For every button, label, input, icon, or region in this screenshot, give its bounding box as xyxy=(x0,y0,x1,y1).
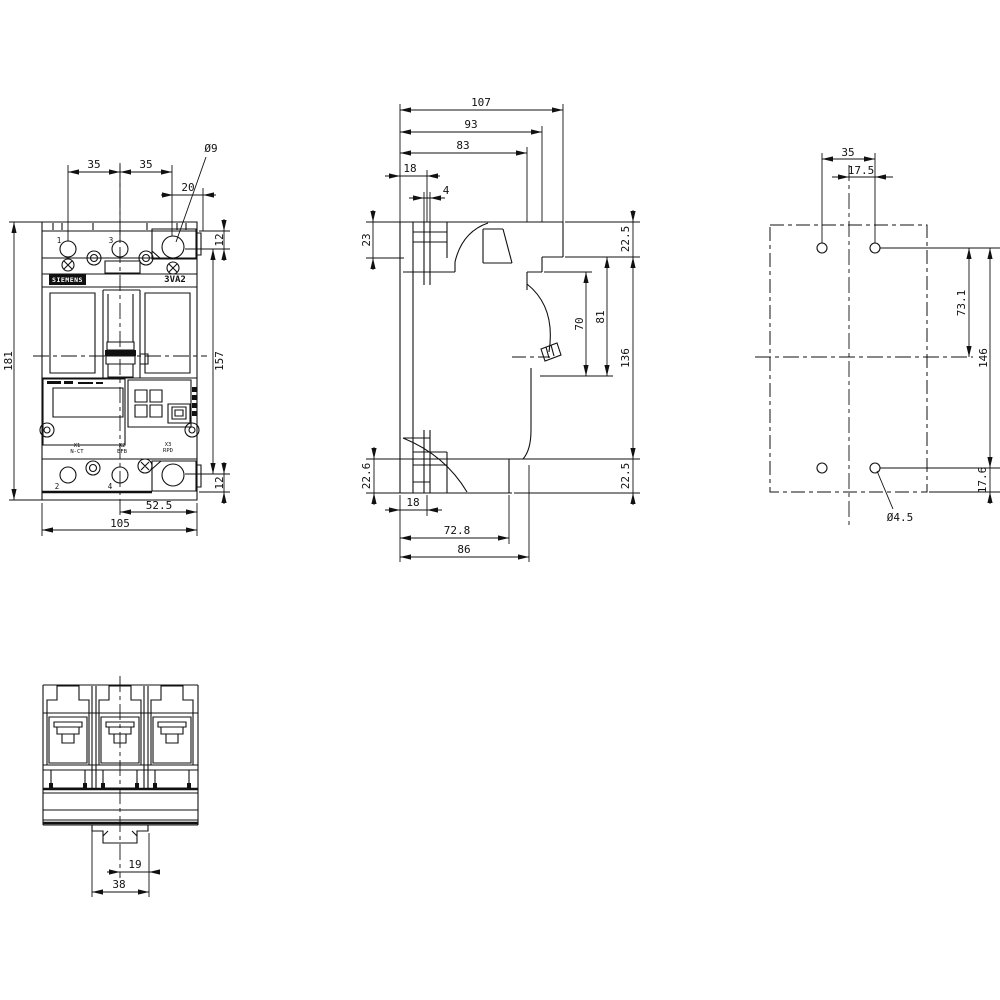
dim-70: 70 xyxy=(573,317,586,330)
mounting-hole-top-left xyxy=(817,243,827,253)
dim-107: 107 xyxy=(471,96,491,109)
dim-86: 86 xyxy=(457,543,470,556)
drill-arrowheads xyxy=(822,156,993,503)
dimension-drawing-page: 35 35 20 Ø9 12 157 12 181 52.5 105 SIEME… xyxy=(0,0,1000,1000)
drill-holes xyxy=(817,243,880,473)
dim-93: 93 xyxy=(464,118,477,131)
dim-105: 105 xyxy=(110,517,130,530)
dim-38: 38 xyxy=(112,878,125,891)
bottom-view-dimension-lines xyxy=(92,831,160,897)
dim-22-6: 22.6 xyxy=(360,463,373,490)
dim-23: 23 xyxy=(360,233,373,246)
mounting-hole-bottom-right xyxy=(870,463,880,473)
bottom-view-arrowheads xyxy=(92,869,160,894)
bottom-view-heavy-lines xyxy=(43,789,198,823)
hole-pole1 xyxy=(60,241,76,257)
siemens-logo: SIEMENS xyxy=(52,276,83,284)
dim-20: 20 xyxy=(181,181,194,194)
dia-9-label: Ø9 xyxy=(204,142,217,155)
side-view-body-lines xyxy=(400,222,563,493)
front-view: 35 35 20 Ø9 12 157 12 181 52.5 105 SIEME… xyxy=(2,142,230,536)
model-label: 3VA2 xyxy=(164,275,186,285)
dim-72-8: 72.8 xyxy=(444,524,471,537)
dim-52-5: 52.5 xyxy=(146,499,173,512)
side-arrowheads xyxy=(370,107,635,559)
pole-number-1: 1 xyxy=(57,236,62,245)
pole-number-4: 4 xyxy=(108,482,113,491)
dim-12-bottom: 12 xyxy=(213,476,226,489)
dim-18-bottom: 18 xyxy=(406,496,419,509)
mounting-hole-top-right xyxy=(870,243,880,253)
dim-157: 157 xyxy=(213,351,226,371)
dim-17-5: 17.5 xyxy=(848,164,875,177)
technical-drawing: 35 35 20 Ø9 12 157 12 181 52.5 105 SIEME… xyxy=(0,0,1000,1000)
dim-22-5-top: 22.5 xyxy=(619,226,632,253)
dim-136: 136 xyxy=(619,348,632,368)
dim-35-drill: 35 xyxy=(841,146,854,159)
drilling-plan: 35 17.5 73.1 146 17.6 Ø4.5 xyxy=(755,146,1000,525)
hole-pole2 xyxy=(60,467,76,483)
dim-146: 146 xyxy=(977,348,990,368)
drill-centerlines xyxy=(755,165,973,525)
dim-12-top: 12 xyxy=(213,233,226,246)
clamp-hole-top xyxy=(162,236,184,258)
bottom-view-body-lines xyxy=(43,685,198,843)
mounting-hole-bottom-left xyxy=(817,463,827,473)
side-view: 107 93 83 18 4 23 22.6 22.5 136 22.5 81 … xyxy=(360,96,640,562)
terminal-x2-sub: EFB xyxy=(117,449,128,455)
terminal-x3-sub: RPD xyxy=(163,448,173,454)
bottom-view: 19 38 xyxy=(43,676,198,897)
clamp-hole-bottom xyxy=(162,464,184,486)
dim-35-left: 35 xyxy=(87,158,100,171)
dim-73-1: 73.1 xyxy=(955,290,968,317)
dim-83: 83 xyxy=(456,139,469,152)
dim-17-6: 17.6 xyxy=(976,467,989,494)
dim-18-top: 18 xyxy=(403,162,416,175)
dim-19: 19 xyxy=(128,858,141,871)
front-view-dark-fills xyxy=(47,274,197,416)
dim-181: 181 xyxy=(2,351,15,371)
drill-outline-phantom xyxy=(770,225,927,492)
dim-81: 81 xyxy=(594,310,607,323)
dim-35-right: 35 xyxy=(139,158,152,171)
pole-number-2: 2 xyxy=(55,482,60,491)
dia-4-5-label: Ø4.5 xyxy=(887,511,914,524)
dim-4: 4 xyxy=(443,184,450,197)
terminal-x1-sub: N-CT xyxy=(70,449,84,455)
dim-22-5-bottom: 22.5 xyxy=(619,463,632,490)
pole-number-3: 3 xyxy=(109,236,114,245)
